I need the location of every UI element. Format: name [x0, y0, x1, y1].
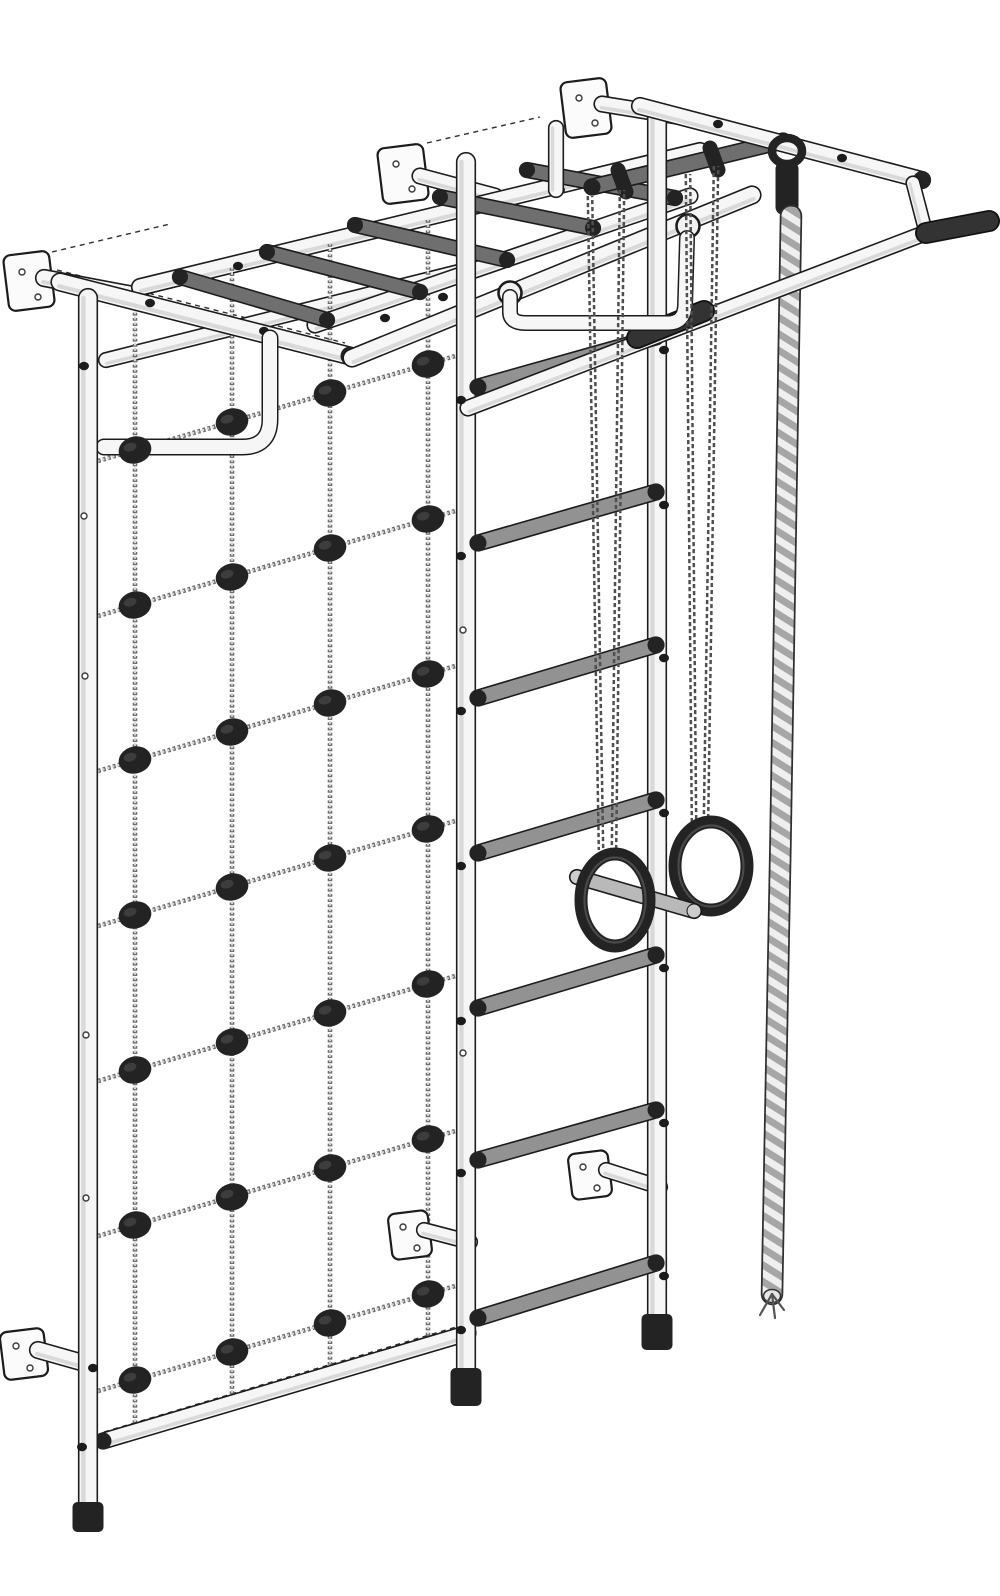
net-knot: [116, 1053, 155, 1088]
net-knot: [311, 996, 350, 1031]
net-knot: [409, 967, 448, 1002]
net-knot: [116, 1363, 155, 1398]
net-knot: [213, 1025, 252, 1060]
net-left-post: [83, 298, 88, 1506]
climbing-rope: [760, 216, 791, 1318]
wall-guide-line: [427, 117, 540, 143]
net-knot: [311, 1306, 350, 1341]
net-knot: [116, 433, 155, 468]
chain-hook-collar: [618, 170, 626, 192]
net-knot: [409, 657, 448, 692]
post-foot: [73, 1502, 104, 1532]
gym-complex-illustration: [0, 0, 1000, 1596]
wallbars-rung: [470, 1102, 665, 1169]
wallbars-rung: [470, 484, 665, 552]
net-knot: [311, 841, 350, 876]
net-knot: [311, 1151, 350, 1186]
net-knot: [409, 502, 448, 537]
top-ladder-rung: [259, 244, 428, 300]
wallbars-rung: [470, 1255, 665, 1327]
net-knot: [213, 1335, 252, 1370]
product-illustration-svg: [0, 0, 1000, 1596]
support-stub: [552, 128, 556, 190]
post-foot: [451, 1368, 482, 1406]
net-knot: [213, 715, 252, 750]
net-knot: [213, 1180, 252, 1215]
net-knot: [116, 1208, 155, 1243]
net-bottom-rail: [95, 1325, 477, 1450]
net-knot: [213, 405, 252, 440]
net-knot: [116, 588, 155, 623]
net-knot: [409, 1277, 448, 1312]
wallbars-rung: [470, 792, 665, 862]
net-knot: [213, 870, 252, 905]
pullup-grip-right: [926, 221, 989, 233]
net-knot: [116, 743, 155, 778]
net-knot: [116, 898, 155, 933]
net-knot: [311, 686, 350, 721]
net-knot: [311, 531, 350, 566]
wallbars-left-post: [461, 162, 466, 1372]
wallbars-right-post: [652, 114, 657, 1318]
net-knot: [409, 347, 448, 382]
wallbars-rung: [470, 947, 665, 1017]
net-knot: [409, 812, 448, 847]
gym-ring-right: [675, 822, 747, 910]
wall-guide-line: [52, 224, 170, 252]
net-knot: [311, 376, 350, 411]
net-knot: [409, 1122, 448, 1157]
wallbars-rung: [470, 637, 665, 707]
post-foot: [642, 1314, 673, 1350]
net-knot: [213, 560, 252, 595]
